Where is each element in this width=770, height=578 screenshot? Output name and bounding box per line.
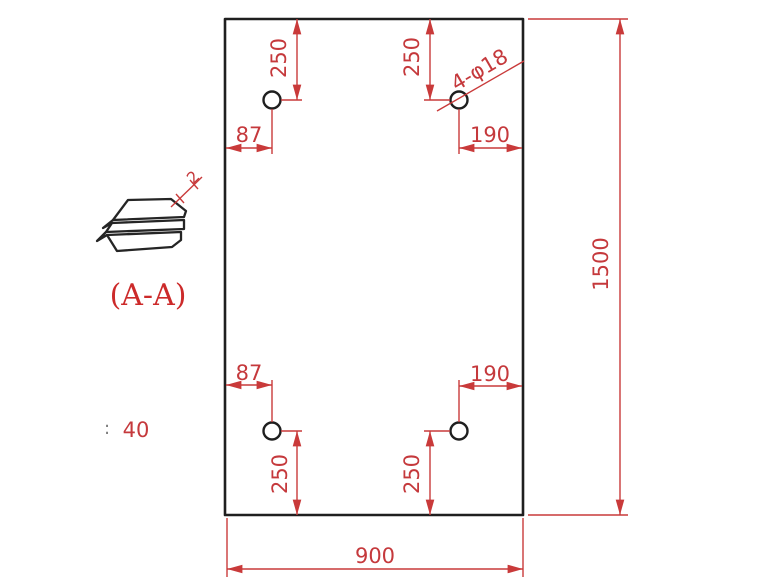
dim-label-1500: 1500	[589, 237, 613, 290]
dim-label-bottom-right-250: 250	[400, 454, 424, 494]
section-title: (A-A)	[110, 278, 187, 313]
note-value: 40	[123, 418, 150, 442]
dim-overall-width: 900	[227, 518, 523, 577]
dim-label-bottom-left-250: 250	[268, 454, 292, 494]
dim-label-top-left-250: 250	[267, 38, 291, 78]
drawing-svg: 250 250 87 190 4-φ18 87	[0, 0, 770, 578]
drawing-canvas: 250 250 87 190 4-φ18 87	[0, 0, 770, 578]
section-slat-middle	[106, 220, 184, 232]
dim-top-right-horizontal: 190	[459, 109, 522, 154]
dim-top-left-horizontal: 87	[226, 109, 272, 154]
dim-overall-height: 1500	[528, 19, 628, 515]
section-sketch	[97, 199, 186, 251]
note-40: : 40	[104, 418, 149, 442]
hole-top-left	[264, 92, 281, 109]
dim-bottom-right-horizontal: 190	[459, 362, 522, 422]
section-break-notch-lower	[97, 232, 107, 241]
dim-top-left-vertical: 250	[267, 19, 302, 100]
dim-label-top-right-250: 250	[400, 37, 424, 77]
dim-label-bottom-190: 190	[470, 362, 510, 386]
dim-label-top-190: 190	[470, 123, 510, 147]
section-thickness-dim: 2	[171, 167, 203, 207]
note-colon: :	[104, 418, 110, 439]
dim-bottom-left-vertical: 250	[268, 431, 302, 515]
section-thickness-label: 2	[183, 167, 204, 188]
dim-bottom-left-horizontal: 87	[226, 361, 272, 422]
section-slat-bottom	[107, 232, 181, 251]
dim-bottom-right-vertical: 250	[400, 431, 450, 515]
dim-top-right-vertical: 250	[400, 19, 450, 100]
dim-label-top-87: 87	[236, 123, 263, 147]
dim-label-bottom-87: 87	[236, 361, 263, 385]
hole-bottom-left	[264, 423, 281, 440]
dim-label-900: 900	[355, 544, 395, 568]
hole-callout-label: 4-φ18	[447, 44, 512, 96]
hole-bottom-right	[451, 423, 468, 440]
